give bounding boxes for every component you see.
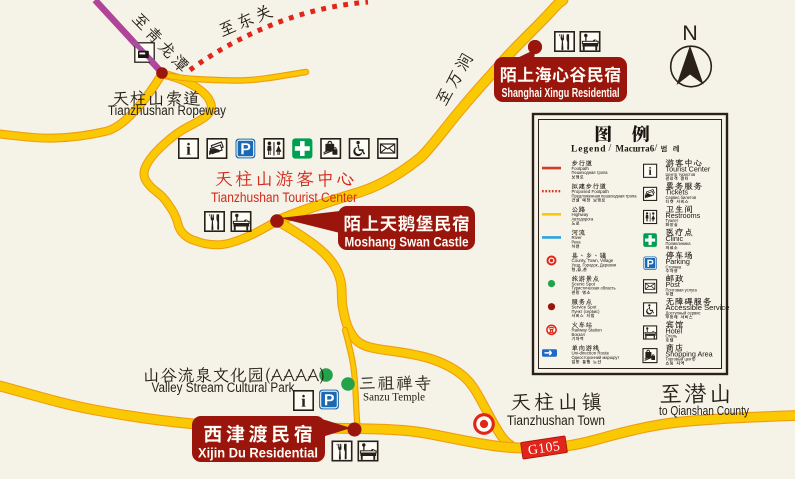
svg-text:/: / (609, 143, 612, 154)
svg-text:/: / (655, 143, 658, 154)
svg-text:Доступный сервис: Доступный сервис (666, 311, 701, 316)
svg-text:Valley Stream Cultural Park: Valley Stream Cultural Park (152, 380, 295, 395)
svg-text:Tianzhushan Town: Tianzhushan Town (507, 413, 605, 428)
svg-text:Moshang Swan Castle: Moshang Swan Castle (345, 235, 469, 250)
svg-text:Односторонний маршрут: Односторонний маршрут (572, 355, 620, 360)
svg-text:Предложенная пешеходная тропа: Предложенная пешеходная тропа (572, 193, 638, 198)
svg-text:Река: Река (572, 240, 582, 245)
svg-text:Стоянка: Стоянка (666, 264, 682, 269)
svg-text:Xijin Du Residential: Xijin Du Residential (198, 446, 318, 461)
svg-text:Legend: Legend (571, 145, 607, 155)
svg-text:Пешеходная тропа: Пешеходная тропа (572, 170, 609, 175)
svg-text:Центр туристов: Центр туристов (666, 172, 696, 177)
svg-text:Сервис билетов: Сервис билетов (666, 195, 697, 200)
svg-text:N: N (682, 21, 698, 45)
svg-text:Tianzhushan Ropeway: Tianzhushan Ropeway (108, 103, 226, 118)
svg-text:Вокзал: Вокзал (572, 332, 586, 337)
svg-text:Уезд, Городок, Деревня: Уезд, Городок, Деревня (572, 263, 617, 268)
svg-text:Масшта6: Масшта6 (616, 144, 655, 154)
svg-text:Торговый центр: Торговый центр (666, 357, 697, 362)
svg-text:Почтовая услуга: Почтовая услуга (666, 287, 698, 292)
svg-text:Поликлиника: Поликлиника (666, 241, 692, 246)
svg-text:Sanzu Temple: Sanzu Temple (363, 392, 425, 404)
svg-text:Туалет: Туалет (666, 218, 679, 223)
svg-text:Пункт (сервис): Пункт (сервис) (572, 309, 601, 314)
svg-text:Отель: Отель (666, 334, 678, 339)
svg-text:Shanghai Xingu Residential: Shanghai Xingu Residential (502, 86, 620, 100)
svg-text:Автодорога: Автодорога (572, 216, 594, 221)
svg-text:Tianzhushan Tourist Center: Tianzhushan Tourist Center (211, 190, 357, 205)
svg-text:Туристическая область: Туристическая область (572, 286, 616, 291)
svg-text:to Qianshan County: to Qianshan County (659, 404, 750, 418)
